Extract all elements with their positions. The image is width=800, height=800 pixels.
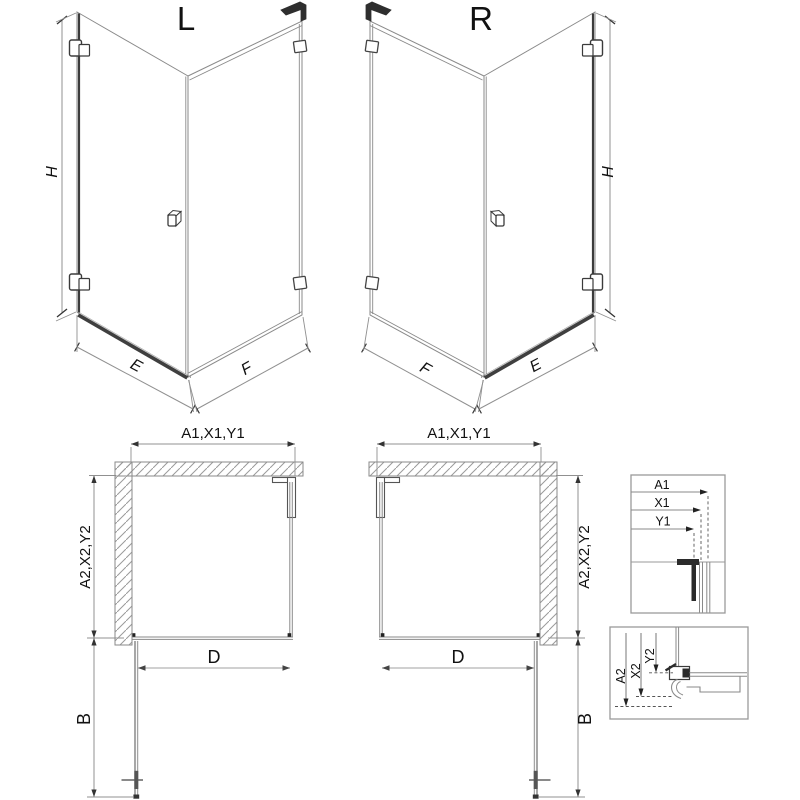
plan-left-width-label: A1,X1,Y1: [181, 425, 244, 442]
plan-left-swing-label: B: [74, 713, 94, 725]
variant-label-right: R: [469, 0, 493, 37]
wall-hatch-top-right-plan: [369, 462, 557, 476]
dim-label-panel-edge-left: F: [238, 359, 256, 379]
detail-bottom-a2-label: A2: [614, 668, 628, 683]
dim-label-door-edge-left: E: [127, 356, 145, 376]
dim-label-height-right: H: [600, 166, 617, 178]
plan-right-depth-label: A2,X2,Y2: [576, 525, 593, 588]
detail-top-y1-label: Y1: [655, 515, 670, 529]
enclosure-3d-right: [362, 2, 616, 413]
plan-left-depth-label: A2,X2,Y2: [77, 525, 94, 588]
shower-enclosure-drawing: L R H E F H E F: [0, 0, 800, 800]
wall-hatch-side-right-plan: [540, 462, 557, 645]
dim-label-door-edge-right: E: [527, 356, 545, 376]
technical-drawing-page: L R H E F H E F: [0, 0, 800, 800]
variant-label-left: L: [177, 0, 195, 37]
plan-right-swing-label: B: [575, 713, 595, 725]
detail-top-x1-label: X1: [654, 496, 669, 510]
detail-bottom-x2-label: X2: [629, 663, 643, 678]
dim-label-height-left: H: [44, 166, 61, 178]
wall-hatch-side-left-plan: [115, 462, 132, 645]
detail-box-top: [631, 475, 725, 613]
wall-hatch-top-left-plan: [115, 462, 303, 476]
detail-bottom-y2-label: Y2: [643, 648, 657, 663]
plan-right-width-label: A1,X1,Y1: [427, 425, 490, 442]
detail-top-a1-label: A1: [654, 478, 669, 492]
enclosure-3d-left: [56, 2, 310, 413]
plan-left-door-label: D: [208, 647, 221, 667]
dim-label-panel-edge-right: F: [417, 359, 435, 379]
plan-right-door-label: D: [452, 647, 465, 667]
